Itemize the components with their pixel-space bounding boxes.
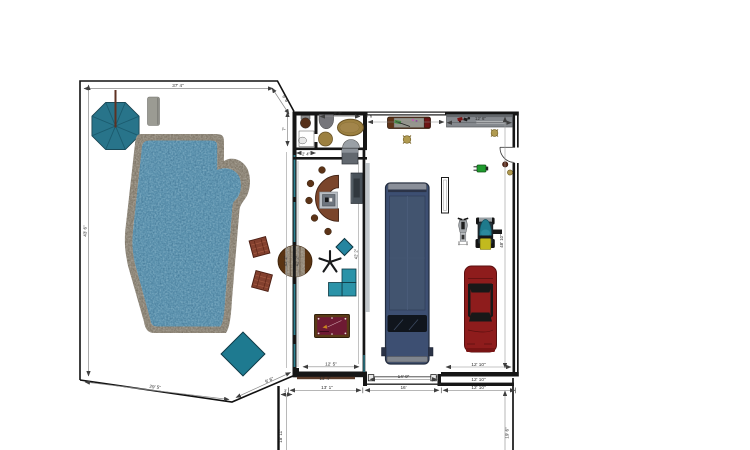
svg-text:4' 6": 4' 6" <box>365 114 374 119</box>
svg-text:16': 16' <box>400 385 406 390</box>
svg-text:12' 10": 12' 10" <box>471 377 486 382</box>
svg-text:12' 6": 12' 6" <box>475 116 486 121</box>
svg-text:3': 3' <box>284 388 287 393</box>
svg-text:7': 7' <box>282 127 287 131</box>
svg-text:14' 9": 14' 9" <box>398 374 410 379</box>
svg-text:6' 3": 6' 3" <box>334 111 343 116</box>
svg-text:12' 10": 12' 10" <box>471 362 486 367</box>
svg-text:42' 2": 42' 2" <box>295 255 300 266</box>
svg-text:12' 5": 12' 5" <box>325 362 337 367</box>
svg-text:37' 4": 37' 4" <box>172 83 184 88</box>
svg-text:13' 4": 13' 4" <box>320 376 331 381</box>
svg-text:43' 6": 43' 6" <box>83 225 88 237</box>
svg-text:42' 2": 42' 2" <box>283 255 288 266</box>
svg-text:42' 2": 42' 2" <box>354 248 359 259</box>
svg-text:2' 4": 2' 4" <box>302 152 311 157</box>
svg-text:12' 10": 12' 10" <box>471 385 486 390</box>
svg-text:48' 10": 48' 10" <box>499 234 504 248</box>
svg-text:13' 1": 13' 1" <box>321 385 333 390</box>
svg-text:19' 6": 19' 6" <box>505 427 510 439</box>
svg-text:18' 11": 18' 11" <box>278 429 283 443</box>
